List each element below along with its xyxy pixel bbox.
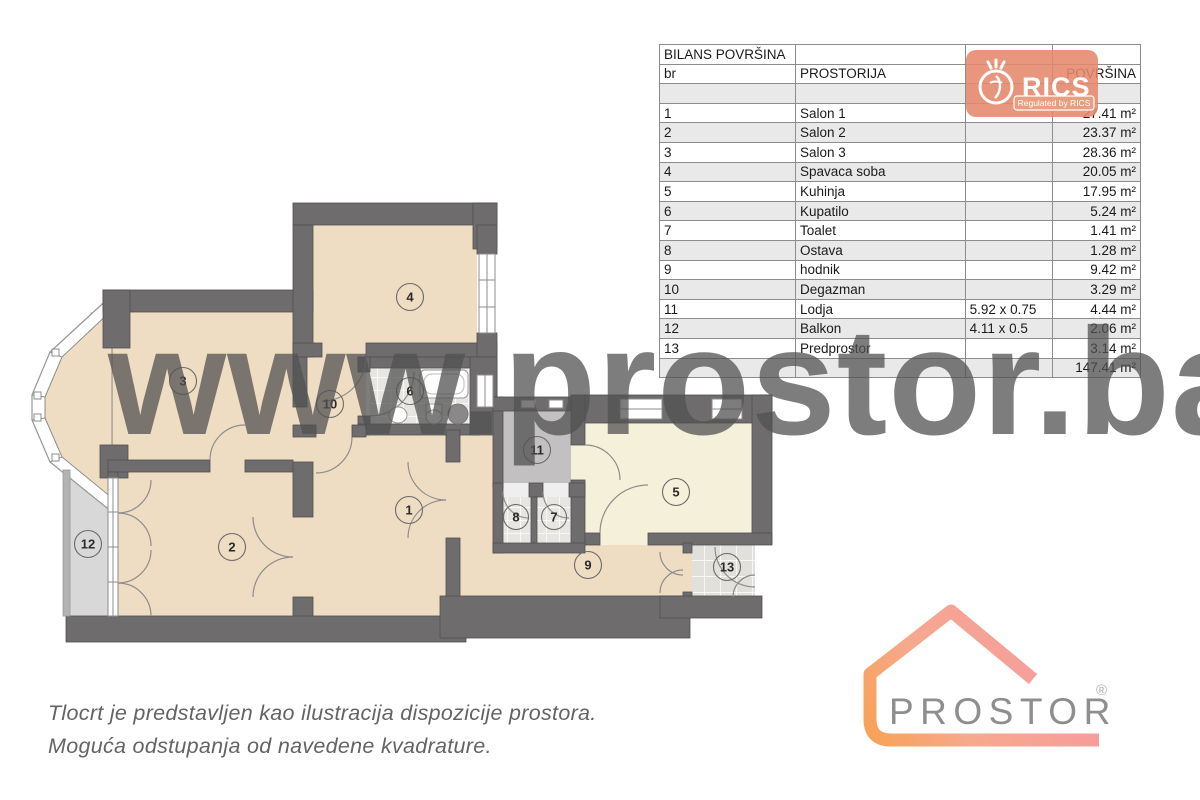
- room-label-12: 12: [81, 537, 95, 552]
- room-label-1: 1: [405, 503, 412, 518]
- table-row: 7Toalet1.41 m²: [660, 221, 1141, 241]
- table-row: 8Ostava1.28 m²: [660, 240, 1141, 260]
- table-row: 2Salon 223.37 m²: [660, 123, 1141, 143]
- balcony-outer-wall: [63, 470, 70, 616]
- disclaimer-line-1: Tlocrt je predstavljen kao ilustracija d…: [48, 697, 597, 730]
- table-row: 13Predprostor3.14 m²: [660, 338, 1141, 358]
- table-row: 5Kuhinja17.95 m²: [660, 182, 1141, 202]
- room-label-11: 11: [530, 443, 544, 458]
- disclaimer-line-2: Moguća odstupanja od navedene kvadrature…: [48, 730, 597, 763]
- room-label-5: 5: [672, 485, 679, 500]
- table-row: 9hodnik9.42 m²: [660, 260, 1141, 280]
- rics-regulated-band: Regulated by RICS: [1014, 96, 1094, 110]
- table-row: 12Balkon4.11 x 0.52.06 m²: [660, 319, 1141, 339]
- room-label-9: 9: [584, 558, 591, 573]
- col-header-prostorija: PROSTORIJA: [795, 64, 965, 84]
- room-label-13: 13: [720, 560, 734, 575]
- table-row: 4Spavaca soba20.05 m²: [660, 162, 1141, 182]
- room-label-7: 7: [550, 510, 557, 525]
- room-label-4: 4: [406, 290, 414, 305]
- rics-tagline: Regulated by RICS: [1018, 98, 1091, 108]
- table-total-row: 147.41 m²: [660, 358, 1141, 378]
- bay-window: [32, 295, 112, 512]
- prostor-wordmark: PROSTOR: [889, 691, 1117, 732]
- registered-mark: ®: [1096, 682, 1107, 699]
- total-area: 147.41 m²: [1052, 358, 1140, 378]
- room-label-3: 3: [179, 374, 186, 389]
- room-label-8: 8: [512, 510, 519, 525]
- table-title: BILANS POVRŠINA: [660, 45, 796, 65]
- col-header-br: br: [660, 64, 796, 84]
- rics-logo: RICS Regulated by RICS: [966, 50, 1098, 117]
- boiler: [448, 404, 468, 424]
- disclaimer: Tlocrt je predstavljen kao ilustracija d…: [48, 697, 597, 763]
- prostor-logo: PROSTOR ®: [850, 595, 1150, 770]
- table-row: 11Lodja5.92 x 0.754.44 m²: [660, 299, 1141, 319]
- sink: [389, 407, 407, 423]
- room-label-10: 10: [323, 397, 337, 412]
- table-row: 3Salon 328.36 m²: [660, 142, 1141, 162]
- room-label-2: 2: [228, 540, 235, 555]
- table-row: 10Degazman3.29 m²: [660, 280, 1141, 300]
- table-row: 6Kupatilo5.24 m²: [660, 201, 1141, 221]
- floor-plan-page: 1 2 3 4 5 6 7 8 9 10 11: [0, 0, 1200, 800]
- room-label-6: 6: [406, 384, 413, 399]
